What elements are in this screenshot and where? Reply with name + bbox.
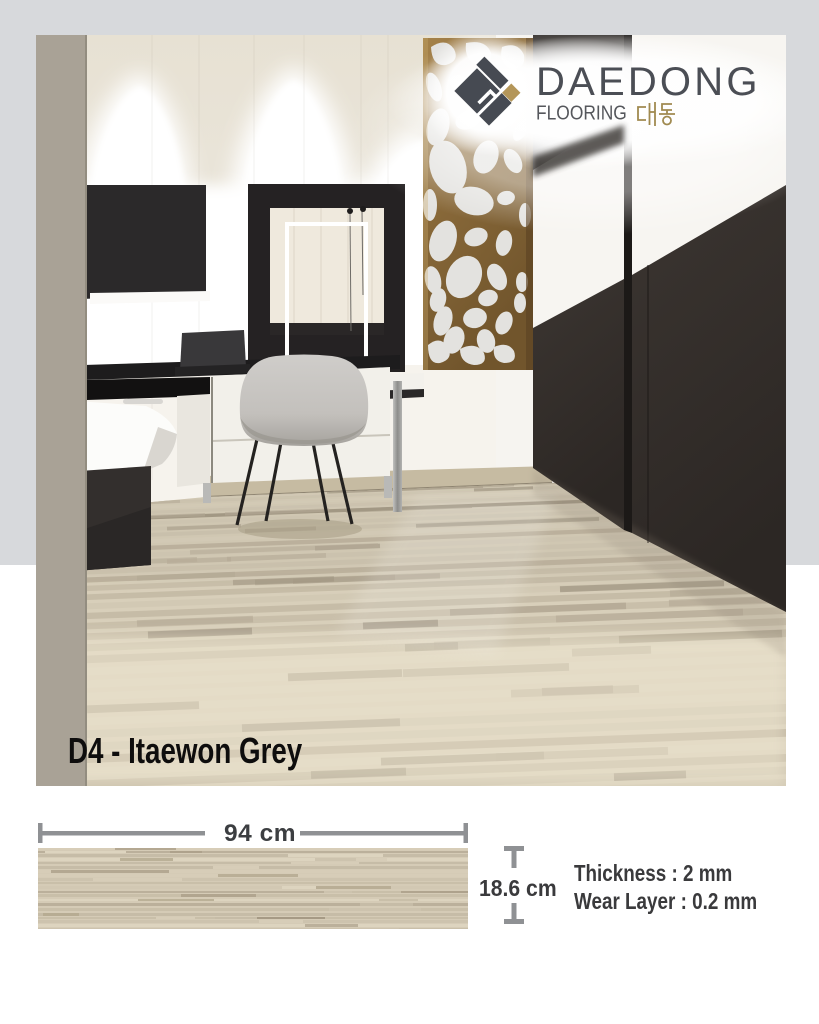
svg-text:DAEDONG: DAEDONG (536, 60, 761, 104)
svg-text:D4 - Itaewon Grey: D4 - Itaewon Grey (68, 730, 302, 771)
svg-text:94 cm: 94 cm (224, 823, 296, 843)
svg-text:FLOORING: FLOORING (536, 101, 627, 123)
